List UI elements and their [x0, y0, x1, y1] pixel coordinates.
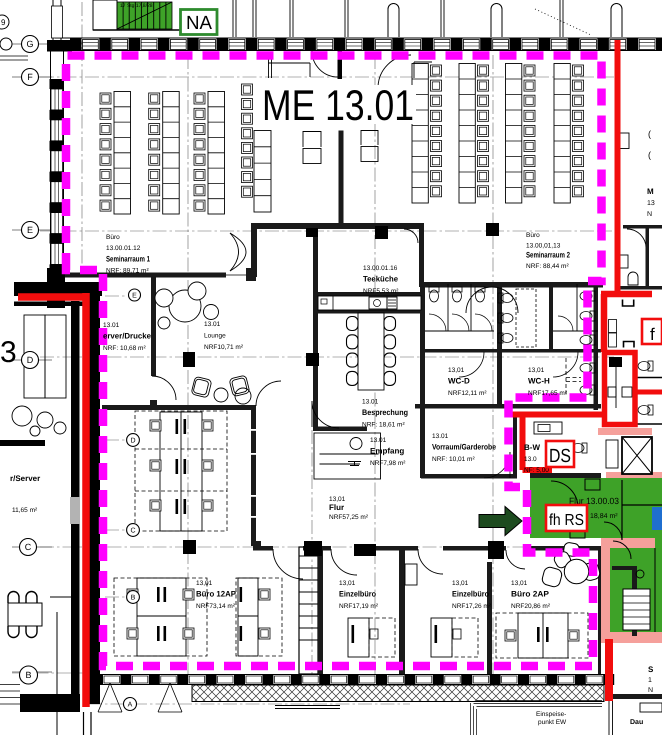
svg-text:17 Stg 17,8/28: 17 Stg 17,8/28	[120, 3, 153, 9]
svg-text:Büro: Büro	[106, 234, 120, 241]
svg-text:13.01: 13.01	[103, 322, 120, 329]
svg-text:(: (	[648, 150, 651, 160]
svg-text:13,01: 13,01	[448, 367, 465, 374]
svg-text:DS: DS	[549, 446, 571, 467]
svg-text:13.00.01.16: 13.00.01.16	[363, 265, 398, 272]
svg-text:N: N	[647, 211, 652, 218]
svg-text:1: 1	[648, 677, 652, 684]
svg-text:11,65 m²: 11,65 m²	[12, 507, 38, 514]
svg-text:NRF7,98 m²: NRF7,98 m²	[370, 460, 406, 467]
svg-text:WC-H: WC-H	[528, 377, 550, 386]
svg-text:Teeküche: Teeküche	[363, 275, 399, 284]
svg-text:Einzelbüro: Einzelbüro	[339, 590, 376, 599]
svg-text:(: (	[648, 129, 651, 139]
svg-text:13: 13	[647, 200, 655, 207]
svg-text:Empfang: Empfang	[370, 447, 404, 456]
svg-text:Lounge: Lounge	[204, 333, 226, 340]
svg-text:B: B	[131, 595, 136, 602]
svg-text:13.00.01.12: 13.00.01.12	[106, 245, 141, 252]
svg-text:13.00,01,13: 13.00,01,13	[526, 242, 561, 249]
svg-text:r/Server: r/Server	[10, 474, 40, 483]
svg-text:Seminarraum 2: Seminarraum 2	[526, 251, 570, 260]
svg-text:NRF10,71 m²: NRF10,71 m²	[204, 344, 244, 351]
svg-text:Seminarraum 1: Seminarraum 1	[106, 254, 150, 263]
svg-text:NRF: 89,71 m²: NRF: 89,71 m²	[106, 268, 149, 275]
svg-text:13.01: 13.01	[370, 437, 387, 444]
svg-text:B: B	[25, 670, 31, 680]
svg-text:Vorraum/Garderobe: Vorraum/Garderobe	[432, 443, 496, 452]
svg-text:NRF20,86 m²: NRF20,86 m²	[511, 603, 551, 610]
svg-text:NRF17,65 m²: NRF17,65 m²	[528, 390, 568, 397]
svg-text:C: C	[130, 528, 135, 535]
svg-text:D: D	[27, 355, 34, 365]
svg-text:NRF17,26 m²: NRF17,26 m²	[452, 603, 492, 610]
svg-text:13,01: 13,01	[329, 496, 346, 503]
svg-text:S: S	[648, 665, 654, 674]
svg-text:13.01: 13.01	[362, 399, 379, 406]
svg-text:WC-D: WC-D	[448, 377, 470, 386]
svg-text:NRF12,11 m²: NRF12,11 m²	[448, 390, 487, 397]
svg-text:NRF17,19 m²: NRF17,19 m²	[339, 603, 379, 610]
svg-text:A: A	[128, 702, 133, 709]
svg-text:F: F	[27, 72, 33, 82]
svg-text:N: N	[648, 687, 653, 694]
svg-text:NA: NA	[186, 13, 212, 34]
svg-text:fh RS: fh RS	[549, 512, 584, 529]
svg-text:Besprechung: Besprechung	[362, 408, 408, 417]
svg-text:f: f	[650, 325, 655, 344]
svg-text:Einzelbüro: Einzelbüro	[452, 590, 489, 599]
svg-text:ME 13.01: ME 13.01	[262, 82, 414, 130]
svg-text:NRF73,14 m²: NRF73,14 m²	[196, 603, 236, 610]
svg-text:NRF: 88,44 m²: NRF: 88,44 m²	[526, 263, 569, 270]
svg-text:Büro: Büro	[526, 232, 540, 239]
svg-text:E: E	[27, 225, 33, 235]
svg-text:E: E	[132, 293, 137, 300]
svg-text:13,01: 13,01	[528, 367, 545, 374]
svg-text:Dau: Dau	[630, 719, 643, 726]
svg-text:NRF57,25 m²: NRF57,25 m²	[329, 514, 369, 521]
svg-text:13.0: 13.0	[524, 456, 537, 463]
svg-text:NRF: 10,68 m²: NRF: 10,68 m²	[103, 345, 146, 352]
svg-text:Büro 12AP: Büro 12AP	[196, 590, 237, 599]
svg-text:13,01: 13,01	[511, 580, 528, 587]
svg-text:B-W: B-W	[524, 443, 540, 452]
svg-text:NRF: 18,61 m²: NRF: 18,61 m²	[362, 422, 405, 429]
svg-text:Einspeise-: Einspeise-	[536, 711, 566, 718]
svg-text:Flur: Flur	[329, 503, 344, 512]
svg-text:13.01: 13.01	[432, 433, 449, 440]
svg-text:G: G	[26, 39, 33, 49]
svg-text:punkt EW: punkt EW	[538, 719, 567, 726]
svg-text:13.01: 13.01	[204, 321, 221, 328]
svg-text:M: M	[647, 187, 654, 196]
svg-text:13,01: 13,01	[452, 580, 469, 587]
svg-text:9: 9	[1, 18, 6, 27]
svg-text:D: D	[130, 438, 135, 445]
svg-text:13,01: 13,01	[339, 580, 356, 587]
svg-text:NRF5,53 m²: NRF5,53 m²	[363, 288, 399, 295]
svg-text:3: 3	[0, 336, 17, 369]
svg-text:18,84 m²: 18,84 m²	[590, 513, 618, 520]
svg-text:Büro 2AP: Büro 2AP	[511, 590, 550, 599]
svg-text:erver/Drucke: erver/Drucke	[103, 332, 152, 341]
svg-text:NRF: 10,01 m²: NRF: 10,01 m²	[432, 456, 475, 463]
svg-text:13,01: 13,01	[196, 580, 213, 587]
svg-text:C: C	[25, 542, 32, 552]
